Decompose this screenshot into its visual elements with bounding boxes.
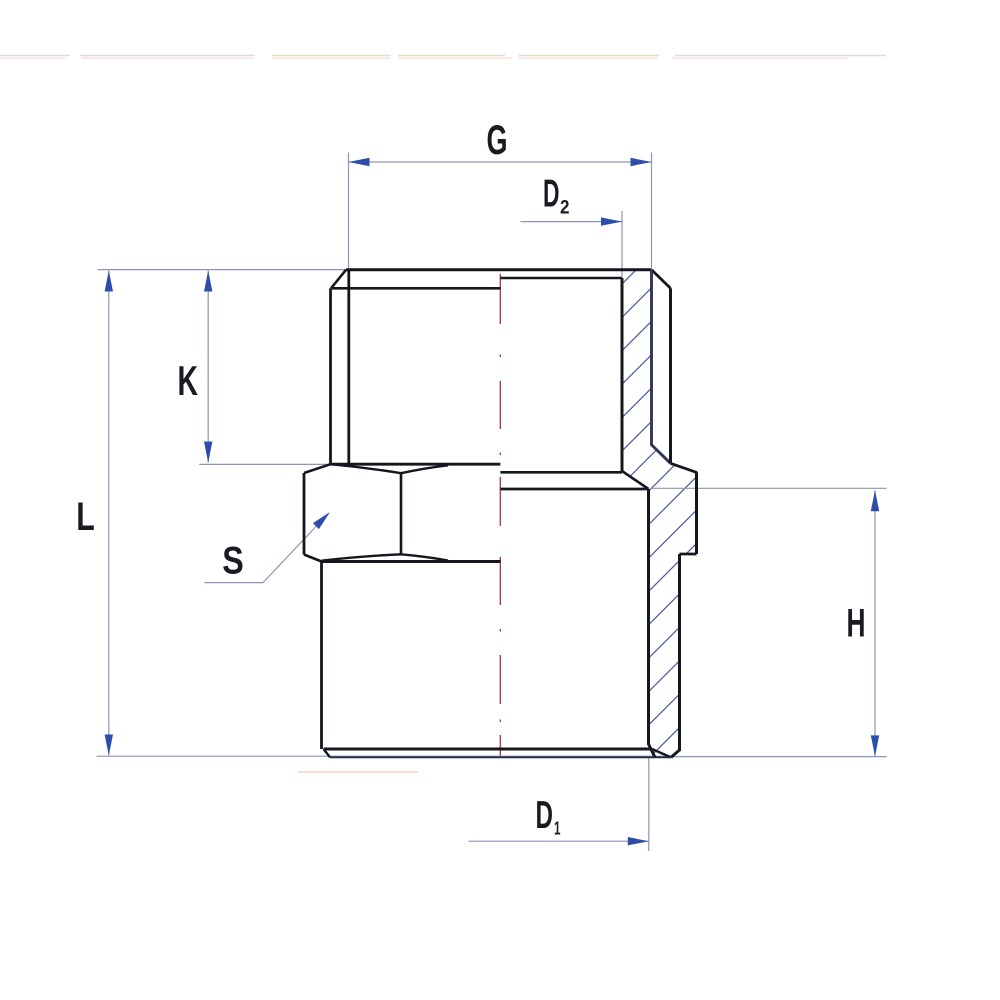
svg-text:S: S: [222, 539, 244, 582]
svg-text:2: 2: [560, 198, 570, 219]
svg-text:K: K: [178, 357, 199, 404]
svg-text:L: L: [76, 495, 95, 539]
svg-text:D: D: [543, 173, 560, 216]
svg-text:D: D: [536, 794, 554, 837]
svg-text:1: 1: [554, 819, 561, 839]
svg-text:G: G: [487, 116, 508, 163]
svg-text:H: H: [847, 601, 866, 645]
